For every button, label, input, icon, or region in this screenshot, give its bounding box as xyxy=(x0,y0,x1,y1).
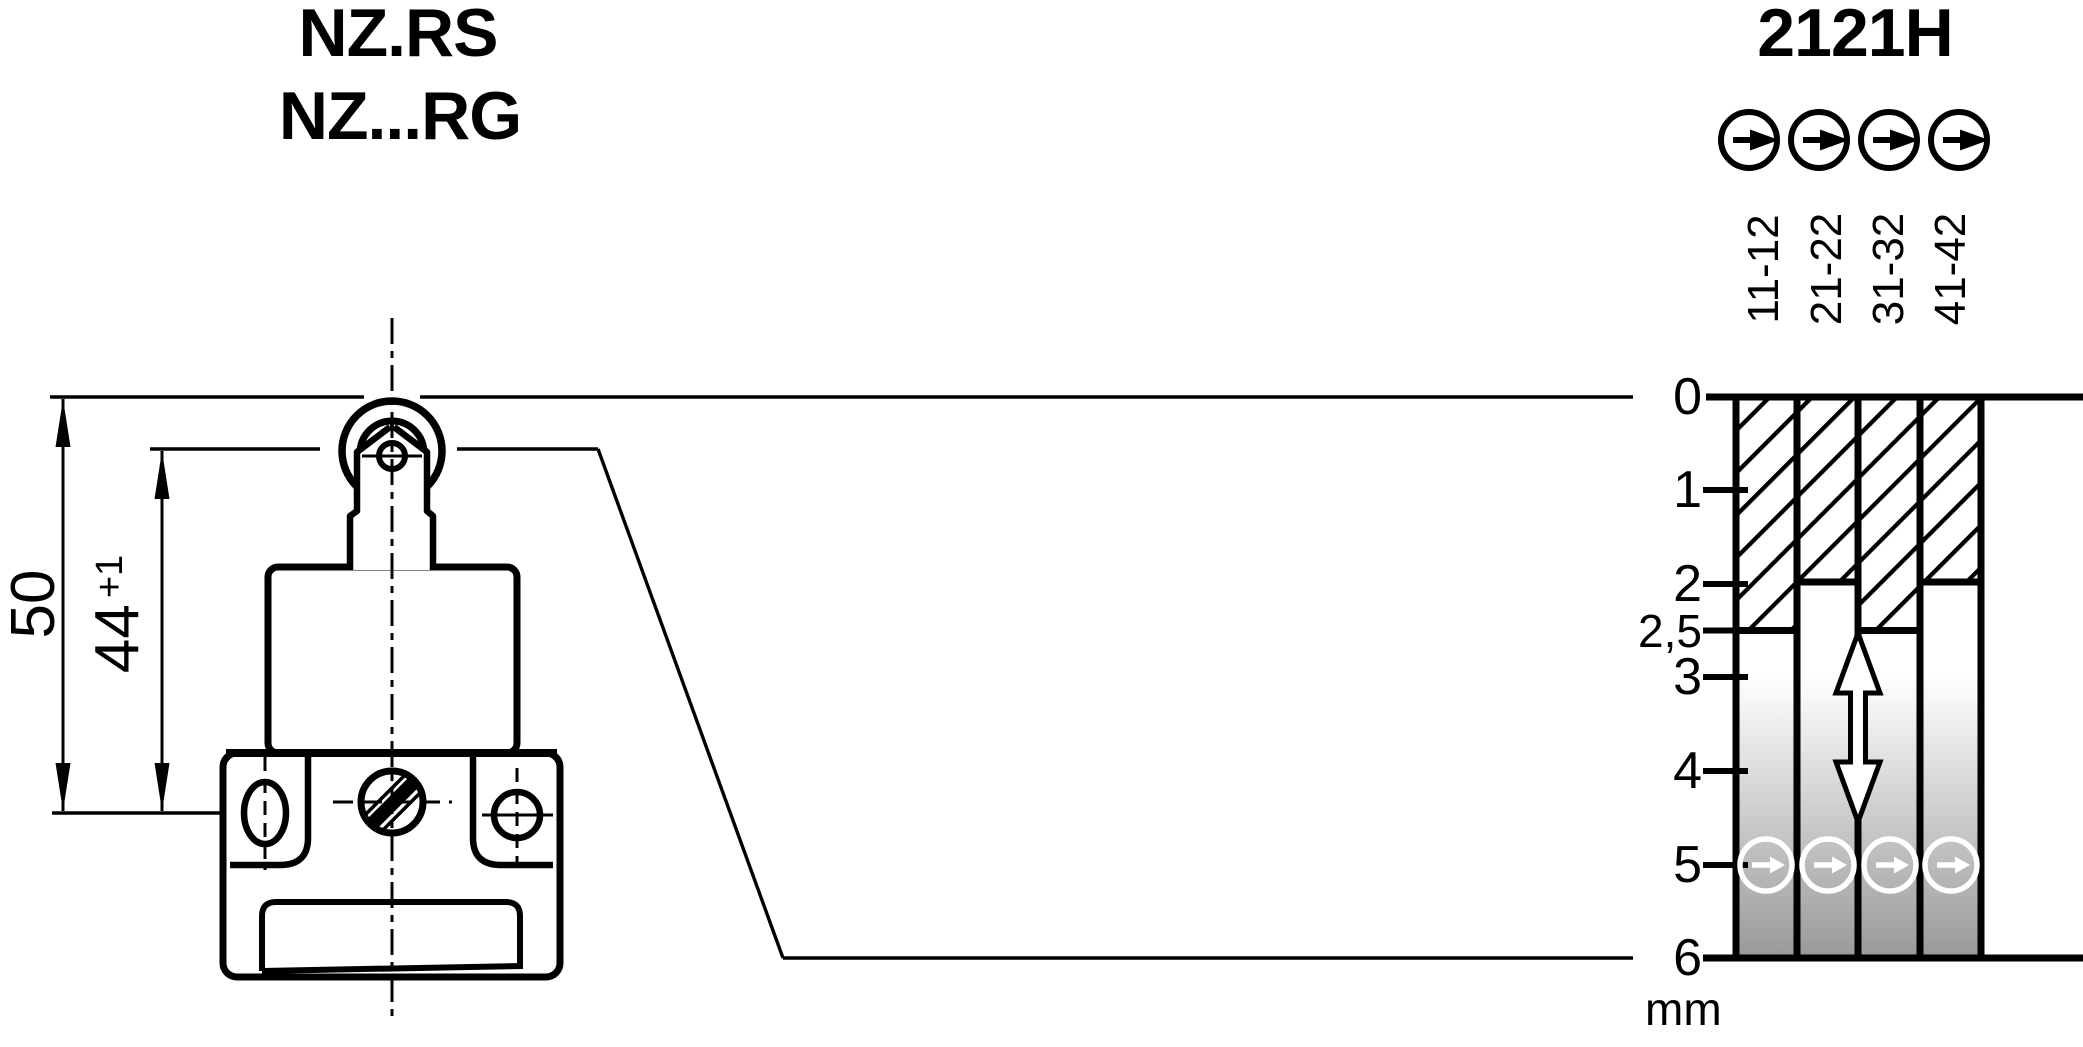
scale-tick-5: 5 xyxy=(1673,839,1702,891)
contact-label-21-22: 21-22 xyxy=(1805,213,1849,326)
dimension-label-44: 44+1 xyxy=(87,555,149,673)
scale-unit: mm xyxy=(1645,986,1722,1032)
dimension-tolerance: +1 xyxy=(89,555,131,598)
closed-zone-4 xyxy=(1920,397,1981,582)
positive-opening-icon xyxy=(1791,112,1849,168)
dimension-arrow-up xyxy=(56,399,71,447)
travel-projection-diagonal xyxy=(598,449,783,958)
datasheet-drawing: NZ.RS NZ...RG 2121H 11-12 21-22 31-32 41… xyxy=(0,0,2083,1047)
positive-opening-icon xyxy=(1721,112,1779,168)
positive-opening-icon xyxy=(1861,112,1919,168)
drawing-canvas xyxy=(0,0,2083,1047)
dimension-arrow-down xyxy=(155,763,170,811)
travel-zone-4 xyxy=(1920,582,1981,958)
positive-opening-icon xyxy=(1931,112,1989,168)
closed-zone-1 xyxy=(1736,397,1797,631)
dimension-arrow-up xyxy=(155,451,170,499)
dimension-arrow-down xyxy=(56,763,71,811)
scale-tick-4: 4 xyxy=(1673,745,1702,797)
diagram-title: 2121H xyxy=(1757,0,1952,67)
closed-zone-2 xyxy=(1797,397,1858,582)
closed-zone-3 xyxy=(1858,397,1920,631)
model-title-1: NZ.RS xyxy=(299,0,498,67)
dimension-label-50: 50 xyxy=(3,570,65,639)
limit-switch xyxy=(223,318,560,1016)
contact-label-41-42: 41-42 xyxy=(1929,213,1973,326)
scale-tick-0: 0 xyxy=(1673,371,1702,423)
dimension-value: 44 xyxy=(83,604,152,673)
scale-tick-3: 3 xyxy=(1673,651,1702,703)
scale-tick-1: 1 xyxy=(1673,464,1702,516)
contact-symbol-icons xyxy=(1721,112,1989,168)
contact-label-31-32: 31-32 xyxy=(1867,213,1911,326)
scale-tick-2: 2 xyxy=(1673,558,1702,610)
scale-tick-6: 6 xyxy=(1673,932,1702,984)
dimension-44 xyxy=(155,451,170,811)
contact-label-11-12: 11-12 xyxy=(1742,214,1786,323)
model-title-2: NZ...RG xyxy=(279,82,521,150)
